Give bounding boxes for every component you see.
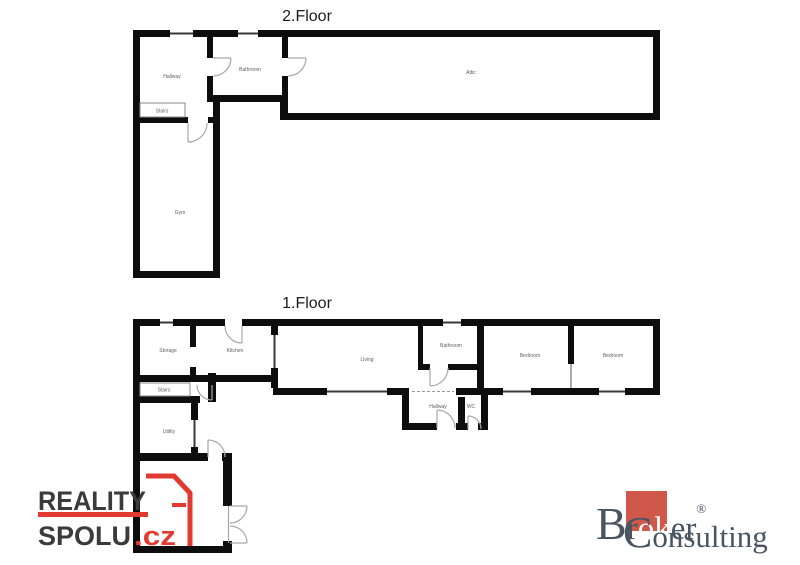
room-label-bedroom-1: Bedroom: [520, 353, 540, 359]
room-label-bathroom: Bathroom: [239, 67, 261, 73]
room-label-bedroom-2: Bedroom: [603, 353, 623, 359]
floor1: 1.Floor: [133, 295, 660, 553]
reality-spolu-logo: REALITY SPOLU .cz: [38, 476, 190, 551]
floor1-doors: [197, 326, 481, 543]
room-label-gym: Gym: [175, 210, 186, 216]
room-label-bathroom: Bathroom: [440, 343, 462, 349]
room-label-utility: Utility: [163, 429, 176, 435]
broker-consulting-logo: Broker® Consulting: [596, 491, 768, 557]
registered-mark: ®: [696, 501, 706, 516]
floor2-title: 2.Floor: [282, 8, 332, 25]
room-label-stairs: Stairs: [156, 109, 169, 115]
spolu-tld: .cz: [134, 521, 176, 551]
floorplan-drawing: 2.Floor: [0, 0, 800, 565]
room-label-kitchen: Kitchen: [227, 348, 244, 354]
floor1-windows: [160, 323, 625, 448]
floorplan-page: 2.Floor: [0, 0, 800, 565]
floor2-room-labels: Hallway Bathroom Attic Stairs Gym: [156, 67, 477, 216]
spolu-wordmark: SPOLU: [38, 521, 131, 551]
room-label-wc: WC: [467, 404, 476, 410]
room-label-hallway: Hallway: [429, 404, 447, 410]
floor1-title: 1.Floor: [282, 295, 332, 312]
reality-wordmark: REALITY: [38, 486, 146, 516]
room-label-storage: Storage: [159, 348, 177, 354]
floor2: 2.Floor: [133, 8, 660, 278]
floor1-walls: [133, 319, 660, 553]
room-label-attic: Attic: [466, 70, 476, 76]
room-label-living: Living: [360, 357, 373, 363]
reality-underline: [38, 512, 148, 517]
floor2-walls: [133, 30, 660, 278]
room-label-hallway: Hallway: [163, 74, 181, 80]
room-label-stairs: Stairs: [158, 388, 171, 394]
